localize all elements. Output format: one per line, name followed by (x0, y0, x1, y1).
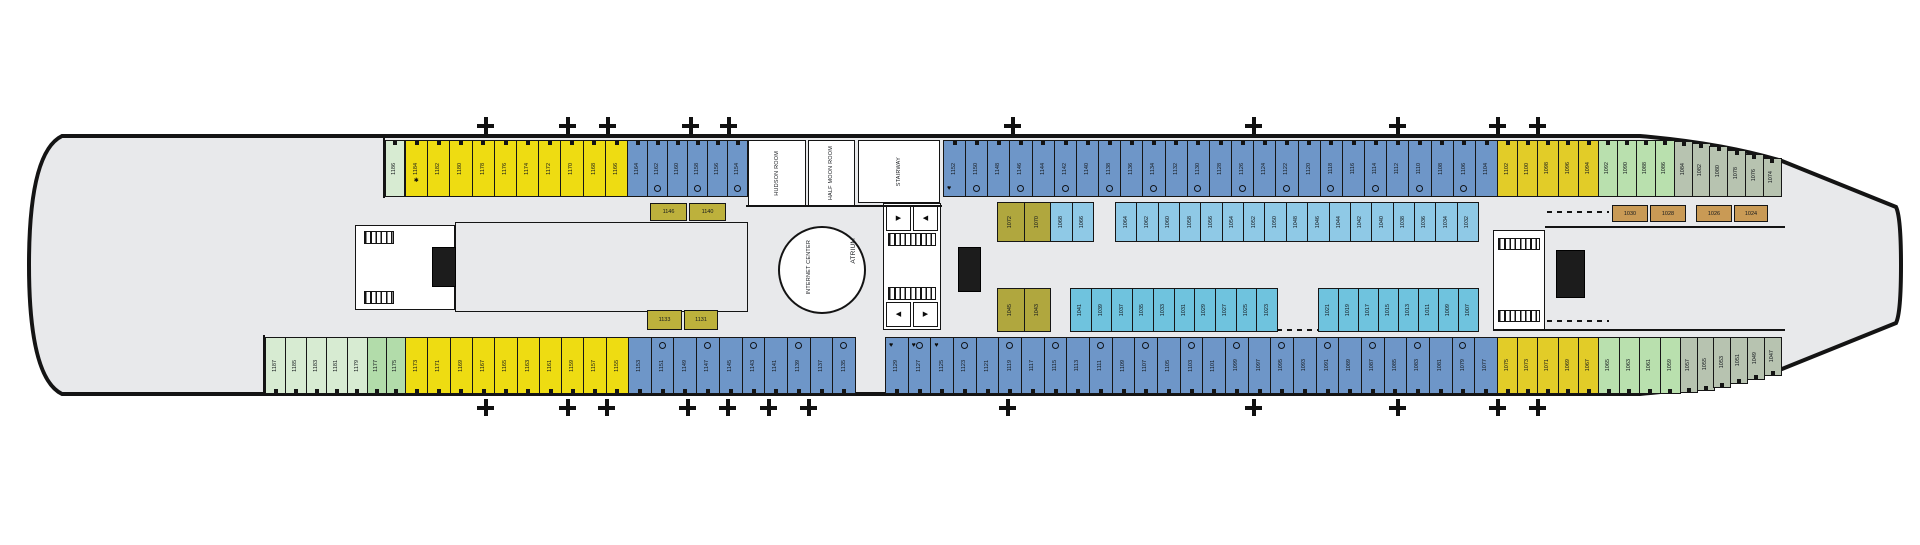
cabin-door-tick (1174, 140, 1178, 145)
cabin-1102[interactable]: 1102 (1497, 140, 1519, 197)
cabin-number: 1150 (974, 163, 980, 175)
cabin-1159[interactable]: 1159 (561, 337, 585, 394)
cabin-1064[interactable]: 1064 (1115, 202, 1138, 242)
cabin-number: 1037 (1120, 304, 1126, 316)
cabin-number: 1108 (1439, 163, 1445, 175)
cabin-number: 1044 (1337, 216, 1343, 228)
cabin-1052[interactable]: 1052 (1243, 202, 1266, 242)
cabin-number: 1043 (1035, 304, 1041, 316)
cabin-1049[interactable]: 1049 (1747, 337, 1765, 380)
cabin-1146[interactable]: 1146 (650, 203, 687, 221)
cabin-1144[interactable]: 1144 (1032, 140, 1055, 197)
cabin-1104[interactable]: 1104 (1475, 140, 1498, 197)
cabin-1032[interactable]: 1032 (1457, 202, 1480, 242)
cabin-1173[interactable]: 1173 (405, 337, 429, 394)
cabin-1013[interactable]: 1013 (1398, 288, 1419, 332)
cabin-1109[interactable]: 1109 (1112, 337, 1136, 394)
cabin-door-tick (636, 140, 640, 145)
cabin-1043[interactable]: 1043 (1024, 288, 1052, 332)
cabin-door-tick (797, 389, 801, 394)
cabin-door-tick (1019, 140, 1023, 145)
cabin-number: 1060 (1166, 216, 1172, 228)
cabin-number: 1067 (1586, 359, 1592, 371)
cabin-number: 1097 (1257, 359, 1263, 371)
cabin-number: 1185 (293, 360, 299, 372)
cabin-1042[interactable]: 1042 (1350, 202, 1373, 242)
cabin-1091[interactable]: 1091 (1316, 337, 1340, 394)
cabin-number: 1031 (1182, 304, 1188, 316)
cabin-1090[interactable]: 1090 (1617, 140, 1637, 197)
cabin-1093[interactable]: 1093 (1293, 337, 1317, 394)
cabin-1155[interactable]: 1155 (606, 337, 630, 394)
cabin-1122[interactable]: 1122 (1275, 140, 1298, 197)
cabin-number: 1062 (1145, 216, 1151, 228)
stairway-landing: STAIRWAY (858, 140, 940, 203)
cabin-1158[interactable]: 1158 (687, 140, 708, 197)
cabin-number: 1011 (1426, 304, 1432, 316)
cabin-1058[interactable]: 1058 (1179, 202, 1202, 242)
cabin-1060[interactable]: 1060 (1158, 202, 1181, 242)
cabin-number: 1023 (1265, 304, 1271, 316)
cabin-1164[interactable]: 1164 (627, 140, 648, 197)
sofabed-ring-icon (840, 342, 847, 349)
cabin-number: 1035 (1140, 304, 1146, 316)
cabin-1099[interactable]: 1099 (1225, 337, 1249, 394)
cabin-door-tick (481, 140, 485, 145)
cabin-1177[interactable]: 1177 (367, 337, 387, 394)
cabin-1138[interactable]: 1138 (1098, 140, 1121, 197)
cabin-1154[interactable]: 1154 (727, 140, 748, 197)
cabin-door-tick (315, 389, 319, 394)
cabin-1021[interactable]: 1021 (1318, 288, 1339, 332)
cabin-1075[interactable]: 1075 (1497, 337, 1519, 394)
accessible-cabin-icon: ♥ (947, 185, 951, 192)
cabin-1092[interactable]: 1092 (1598, 140, 1618, 197)
cabin-number: 1039 (1099, 304, 1105, 316)
cabin-1131[interactable]: 1131 (684, 310, 718, 330)
cabin-1031[interactable]: 1031 (1174, 288, 1196, 332)
cabin-1054[interactable]: 1054 (1222, 202, 1245, 242)
cabin-door-tick (706, 389, 710, 394)
cabin-number: 1169 (459, 360, 465, 372)
cabin-1152[interactable]: 1152♥ (943, 140, 966, 197)
cabin-number: 1100 (1525, 163, 1531, 175)
cabin-1017[interactable]: 1017 (1358, 288, 1379, 332)
cabin-1172[interactable]: 1172 (538, 140, 562, 197)
cabin-number: 1101 (1211, 360, 1217, 372)
cabin-door-tick (1008, 389, 1012, 394)
cabin-door-tick (1625, 140, 1629, 145)
cabin-1009[interactable]: 1009 (1438, 288, 1459, 332)
cabin-1038[interactable]: 1038 (1393, 202, 1416, 242)
dashed-divider (1547, 211, 1609, 213)
cabin-1065[interactable]: 1065 (1598, 337, 1620, 394)
cabin-1059[interactable]: 1059 (1660, 337, 1682, 394)
elevator-shaft[interactable] (958, 247, 981, 292)
connecting-plus-icon (719, 399, 736, 416)
cabin-1070[interactable]: 1070 (1024, 202, 1052, 242)
sofabed-ring-icon (1062, 185, 1069, 192)
stairs-icon[interactable] (888, 233, 936, 246)
cabin-1110[interactable]: 1110 (1408, 140, 1431, 197)
cabin-1168[interactable]: 1168 (583, 140, 607, 197)
cabin-1175[interactable]: 1175 (386, 337, 406, 394)
internet-center-label: INTERNET CENTER (806, 240, 822, 295)
cabin-1116[interactable]: 1116 (1342, 140, 1365, 197)
cabin-1082[interactable]: 1082 (1692, 143, 1711, 197)
cabin-number: 1007 (1466, 304, 1472, 316)
cabin-1098[interactable]: 1098 (1537, 140, 1559, 197)
cabin-1160[interactable]: 1160 (667, 140, 688, 197)
cabin-1033[interactable]: 1033 (1153, 288, 1175, 332)
cabin-door-tick (415, 140, 419, 145)
cabin-1106[interactable]: 1106 (1453, 140, 1476, 197)
cabin-number: 1186 (392, 163, 398, 175)
cabin-number: 1148 (996, 163, 1002, 175)
cabin-1076[interactable]: 1076 (1745, 154, 1764, 197)
connecting-plus-icon (599, 117, 616, 134)
cabin-1046[interactable]: 1046 (1307, 202, 1330, 242)
cabin-1108[interactable]: 1108 (1431, 140, 1454, 197)
cabin-door-tick (656, 140, 660, 145)
cabin-1178[interactable]: 1178 (472, 140, 496, 197)
cabin-number: 1045 (1008, 304, 1014, 316)
cabin-1084[interactable]: 1084 (1674, 141, 1693, 197)
cabin-number: 1114 (1373, 163, 1379, 174)
cabin-1089[interactable]: 1089 (1338, 337, 1362, 394)
cabin-1114[interactable]: 1114 (1364, 140, 1387, 197)
stairs-icon[interactable] (364, 291, 394, 304)
cabin-1140[interactable]: 1140 (1076, 140, 1099, 197)
cabin-1025[interactable]: 1025 (1236, 288, 1258, 332)
cabin-1132[interactable]: 1132 (1165, 140, 1188, 197)
sofabed-ring-icon (1239, 185, 1246, 192)
cabin-door-tick (963, 389, 967, 394)
cabin-number: 1059 (1668, 359, 1674, 371)
sofabed-ring-icon (750, 342, 757, 349)
cabin-1085[interactable]: 1085 (1384, 337, 1408, 394)
cabin-door-tick (1307, 140, 1311, 145)
sofabed-ring-icon (1327, 185, 1334, 192)
cabin-1023[interactable]: 1023 (1256, 288, 1278, 332)
cabin-1047[interactable]: 1047 (1764, 337, 1782, 376)
cabin-number: 1086 (1662, 162, 1668, 174)
cabin-1142[interactable]: 1142 (1054, 140, 1077, 197)
cabin-1123[interactable]: 1123 (953, 337, 977, 394)
cabin-1097[interactable]: 1097 (1248, 337, 1272, 394)
cabin-number: 1088 (1643, 162, 1649, 174)
cabin-1134[interactable]: 1134 (1142, 140, 1165, 197)
cabin-1094[interactable]: 1094 (1578, 140, 1600, 197)
sofabed-ring-icon (1006, 342, 1013, 349)
cabin-1086[interactable]: 1086 (1655, 140, 1675, 197)
cabin-number: 1082 (1698, 164, 1704, 176)
cabin-number: 1104 (1484, 163, 1490, 175)
cabin-1053[interactable]: 1053 (1713, 337, 1731, 388)
cabin-number: 1122 (1284, 163, 1290, 175)
cabin-1169[interactable]: 1169 (450, 337, 474, 394)
cabin-number: 1106 (1462, 163, 1468, 175)
cabin-number: 1093 (1302, 359, 1308, 371)
cabin-1087[interactable]: 1087 (1361, 337, 1385, 394)
cabin-door-tick (1280, 389, 1284, 394)
cabin-number: 1112 (1395, 163, 1401, 174)
cabin-number: 1057 (1686, 359, 1692, 371)
cabin-1165[interactable]: 1165 (494, 337, 518, 394)
cabin-number: 1009 (1446, 304, 1452, 316)
cabin-1118[interactable]: 1118 (1320, 140, 1343, 197)
cabin-number: 1124 (1262, 163, 1268, 175)
cabin-1026[interactable]: 1026 (1696, 205, 1732, 222)
cabin-door-tick (526, 389, 530, 394)
cabin-1120[interactable]: 1120 (1298, 140, 1321, 197)
cabin-1056[interactable]: 1056 (1200, 202, 1223, 242)
cabin-1048[interactable]: 1048 (1286, 202, 1309, 242)
cabin-1074[interactable]: 1074 (1763, 158, 1782, 197)
cabin-door-tick (661, 389, 665, 394)
cabin-door-tick (774, 389, 778, 394)
cabin-1007[interactable]: 1007 (1458, 288, 1479, 332)
service-room: ◀ (913, 206, 938, 231)
cabin-1019[interactable]: 1019 (1338, 288, 1359, 332)
cabin-1057[interactable]: 1057 (1680, 337, 1698, 393)
cabin-1137[interactable]: 1137 (810, 337, 834, 394)
cabin-door-tick (683, 389, 687, 394)
cabin-1166[interactable]: 1166 (605, 140, 629, 197)
cabin-number: 1128 (1218, 163, 1224, 175)
cabin-1179[interactable]: 1179 (347, 337, 369, 394)
cabin-1170[interactable]: 1170 (560, 140, 584, 197)
cabin-1051[interactable]: 1051 (1730, 337, 1748, 384)
cabin-1024[interactable]: 1024 (1734, 205, 1768, 222)
cabin-number: 1152 (952, 163, 958, 175)
cabin-1044[interactable]: 1044 (1329, 202, 1352, 242)
cabin-1037[interactable]: 1037 (1111, 288, 1133, 332)
cabin-1125[interactable]: 1125♥ (930, 337, 954, 394)
cabin-1112[interactable]: 1112 (1386, 140, 1409, 197)
cabin-1130[interactable]: 1130 (1187, 140, 1210, 197)
cabin-1174[interactable]: 1174 (516, 140, 540, 197)
cabin-1062[interactable]: 1062 (1136, 202, 1159, 242)
cabin-1039[interactable]: 1039 (1091, 288, 1113, 332)
cabin-1027[interactable]: 1027 (1215, 288, 1237, 332)
cabin-number: 1065 (1606, 359, 1612, 371)
cabin-number: 1180 (458, 163, 464, 175)
cabin-door-tick (842, 389, 846, 394)
cabin-1055[interactable]: 1055 (1697, 337, 1715, 391)
cabin-1145[interactable]: 1145 (719, 337, 743, 394)
cabin-1157[interactable]: 1157 (583, 337, 607, 394)
cabin-1186[interactable]: 1186 (385, 140, 405, 197)
cabin-1088[interactable]: 1088 (1636, 140, 1656, 197)
sofabed-ring-icon (973, 185, 980, 192)
cabin-1035[interactable]: 1035 (1132, 288, 1154, 332)
cabin-number: 1041 (1078, 304, 1084, 316)
connecting-plus-icon (679, 399, 696, 416)
sofabed-ring-icon (961, 342, 968, 349)
cabin-1079[interactable]: 1079 (1452, 337, 1476, 394)
cabin-1067[interactable]: 1067 (1578, 337, 1600, 394)
cabin-number: 1187 (273, 360, 279, 372)
cabin-1045[interactable]: 1045 (997, 288, 1025, 332)
cabin-number: 1034 (1444, 216, 1450, 228)
cabin-number: 1061 (1647, 359, 1653, 371)
cabin-1095[interactable]: 1095 (1270, 337, 1294, 394)
cabin-1129[interactable]: 1129♥ (885, 337, 909, 394)
cabin-1030[interactable]: 1030 (1612, 205, 1648, 222)
cabin-number: 1074 (1769, 171, 1775, 183)
cabin-door-tick (1485, 140, 1489, 145)
cabin-door-tick (294, 389, 298, 394)
cabin-1071[interactable]: 1071 (1537, 337, 1559, 394)
cabin-1153[interactable]: 1153 (628, 337, 652, 394)
cabin-1167[interactable]: 1167 (472, 337, 496, 394)
cabin-1150[interactable]: 1150 (965, 140, 988, 197)
cabin-1028[interactable]: 1028 (1650, 205, 1686, 222)
cabin-1111[interactable]: 1111 (1089, 337, 1113, 394)
cabin-1015[interactable]: 1015 (1378, 288, 1399, 332)
cabin-1077[interactable]: 1077 (1474, 337, 1498, 394)
cabin-1182[interactable]: 1182 (427, 140, 451, 197)
cabin-1081[interactable]: 1081 (1429, 337, 1453, 394)
cabin-1149[interactable]: 1149 (673, 337, 697, 394)
cabin-number: 1181 (334, 360, 340, 372)
cabin-number: 1136 (1129, 163, 1135, 175)
cabin-1078[interactable]: 1078 (1727, 150, 1746, 197)
cabin-1140[interactable]: 1140 (689, 203, 726, 221)
cabin-1146[interactable]: 1146 (1009, 140, 1032, 197)
cabin-1162[interactable]: 1162 (647, 140, 668, 197)
cabin-1036[interactable]: 1036 (1414, 202, 1437, 242)
cabin-1117[interactable]: 1117 (1021, 337, 1045, 394)
cabin-door-tick (548, 140, 552, 145)
cabin-number: 1146 (1018, 163, 1024, 175)
stairs-icon[interactable] (1498, 238, 1540, 250)
cabin-number: 1050 (1273, 216, 1279, 228)
cabin-number: 1090 (1624, 162, 1630, 174)
cabin-1069[interactable]: 1069 (1558, 337, 1580, 394)
cabin-1136[interactable]: 1136 (1120, 140, 1143, 197)
elevator-shaft[interactable] (1556, 250, 1585, 298)
cabin-number: 1099 (1234, 359, 1240, 371)
cabin-number: 1058 (1188, 216, 1194, 228)
cabin-1185[interactable]: 1185 (285, 337, 307, 394)
cabin-1124[interactable]: 1124 (1253, 140, 1276, 197)
cabin-number: 1103 (1189, 360, 1195, 372)
cabin-number: 1080 (1716, 165, 1722, 177)
cabin-door-tick (1627, 389, 1631, 394)
cabin-1073[interactable]: 1073 (1517, 337, 1539, 394)
cabin-1180[interactable]: 1180 (449, 140, 473, 197)
cabin-number: 1017 (1366, 304, 1372, 316)
cabin-1147[interactable]: 1147 (696, 337, 720, 394)
cabin-1163[interactable]: 1163 (517, 337, 541, 394)
cabin-1128[interactable]: 1128 (1209, 140, 1232, 197)
cabin-door-tick (736, 140, 740, 145)
cabin-1143[interactable]: 1143 (742, 337, 766, 394)
cabin-door-tick (615, 389, 619, 394)
cabin-1105[interactable]: 1105 (1157, 337, 1181, 394)
cabin-1121[interactable]: 1121 (976, 337, 1000, 394)
cabin-1187[interactable]: 1187 (265, 337, 287, 394)
cabin-number: 1140 (1085, 163, 1091, 175)
cabin-1171[interactable]: 1171 (427, 337, 451, 394)
sofabed-ring-icon (1097, 342, 1104, 349)
cabin-1072[interactable]: 1072 (997, 202, 1025, 242)
cabin-1066[interactable]: 1066 (1072, 202, 1095, 242)
cabin-number: 1153 (637, 360, 643, 372)
cabin-number: 1033 (1161, 304, 1167, 316)
cabin-1176[interactable]: 1176 (494, 140, 518, 197)
cabin-1050[interactable]: 1050 (1264, 202, 1287, 242)
elevator-shaft[interactable] (432, 247, 456, 287)
cabin-number: 1115 (1053, 360, 1059, 371)
cabin-1100[interactable]: 1100 (1517, 140, 1539, 197)
cabin-door-tick (1219, 140, 1223, 145)
cabin-door-tick (375, 389, 379, 394)
sofabed-ring-icon (694, 185, 701, 192)
cabin-door-tick (1737, 379, 1741, 384)
connecting-plus-icon (1004, 117, 1021, 134)
cabin-1068[interactable]: 1068 (1050, 202, 1073, 242)
connecting-plus-icon (477, 399, 494, 416)
cabin-1148[interactable]: 1148 (987, 140, 1010, 197)
sofabed-ring-icon (654, 185, 661, 192)
stairs-icon[interactable] (364, 231, 394, 244)
cabin-1161[interactable]: 1161 (539, 337, 563, 394)
cabin-1034[interactable]: 1034 (1435, 202, 1458, 242)
cabin-door-tick (1031, 389, 1035, 394)
stairs-icon[interactable] (1498, 310, 1540, 322)
cabin-1113[interactable]: 1113 (1066, 337, 1090, 394)
cabin-1126[interactable]: 1126 (1231, 140, 1254, 197)
stairs-icon[interactable] (888, 287, 936, 300)
cabin-1107[interactable]: 1107 (1134, 337, 1158, 394)
cabin-1119[interactable]: 1119 (998, 337, 1022, 394)
cabin-number: 1184 (414, 163, 420, 175)
cabin-1096[interactable]: 1096 (1558, 140, 1580, 197)
cabin-1156[interactable]: 1156 (707, 140, 728, 197)
cabin-door-tick (1752, 154, 1756, 159)
cabin-1083[interactable]: 1083 (1406, 337, 1430, 394)
cabin-1115[interactable]: 1115 (1044, 337, 1068, 394)
cabin-door-tick (1144, 389, 1148, 394)
cabin-1061[interactable]: 1061 (1639, 337, 1661, 394)
cabin-number: 1135 (842, 360, 848, 372)
cabin-1139[interactable]: 1139 (787, 337, 811, 394)
cabin-1135[interactable]: 1135 (832, 337, 856, 394)
cabin-1101[interactable]: 1101 (1202, 337, 1226, 394)
cabin-1011[interactable]: 1011 (1418, 288, 1439, 332)
cabin-1133[interactable]: 1133 (647, 310, 682, 330)
cabin-1040[interactable]: 1040 (1371, 202, 1394, 242)
cabin-1184[interactable]: 1184✱ (405, 140, 429, 197)
cabin-1183[interactable]: 1183 (306, 337, 328, 394)
atrium-label: ATRIUM (850, 238, 858, 264)
cabin-1127[interactable]: 1127♥ (908, 337, 932, 394)
cabin-1141[interactable]: 1141 (764, 337, 788, 394)
cabin-1029[interactable]: 1029 (1194, 288, 1216, 332)
cabin-1041[interactable]: 1041 (1070, 288, 1092, 332)
cabin-1103[interactable]: 1103 (1180, 337, 1204, 394)
cabin-1181[interactable]: 1181 (326, 337, 348, 394)
cabin-number: 1117 (1030, 360, 1036, 371)
cabin-door-tick (1190, 389, 1194, 394)
cabin-1151[interactable]: 1151 (651, 337, 675, 394)
cabin-1063[interactable]: 1063 (1619, 337, 1641, 394)
connecting-plus-icon (1489, 399, 1506, 416)
cabin-1080[interactable]: 1080 (1709, 146, 1728, 197)
